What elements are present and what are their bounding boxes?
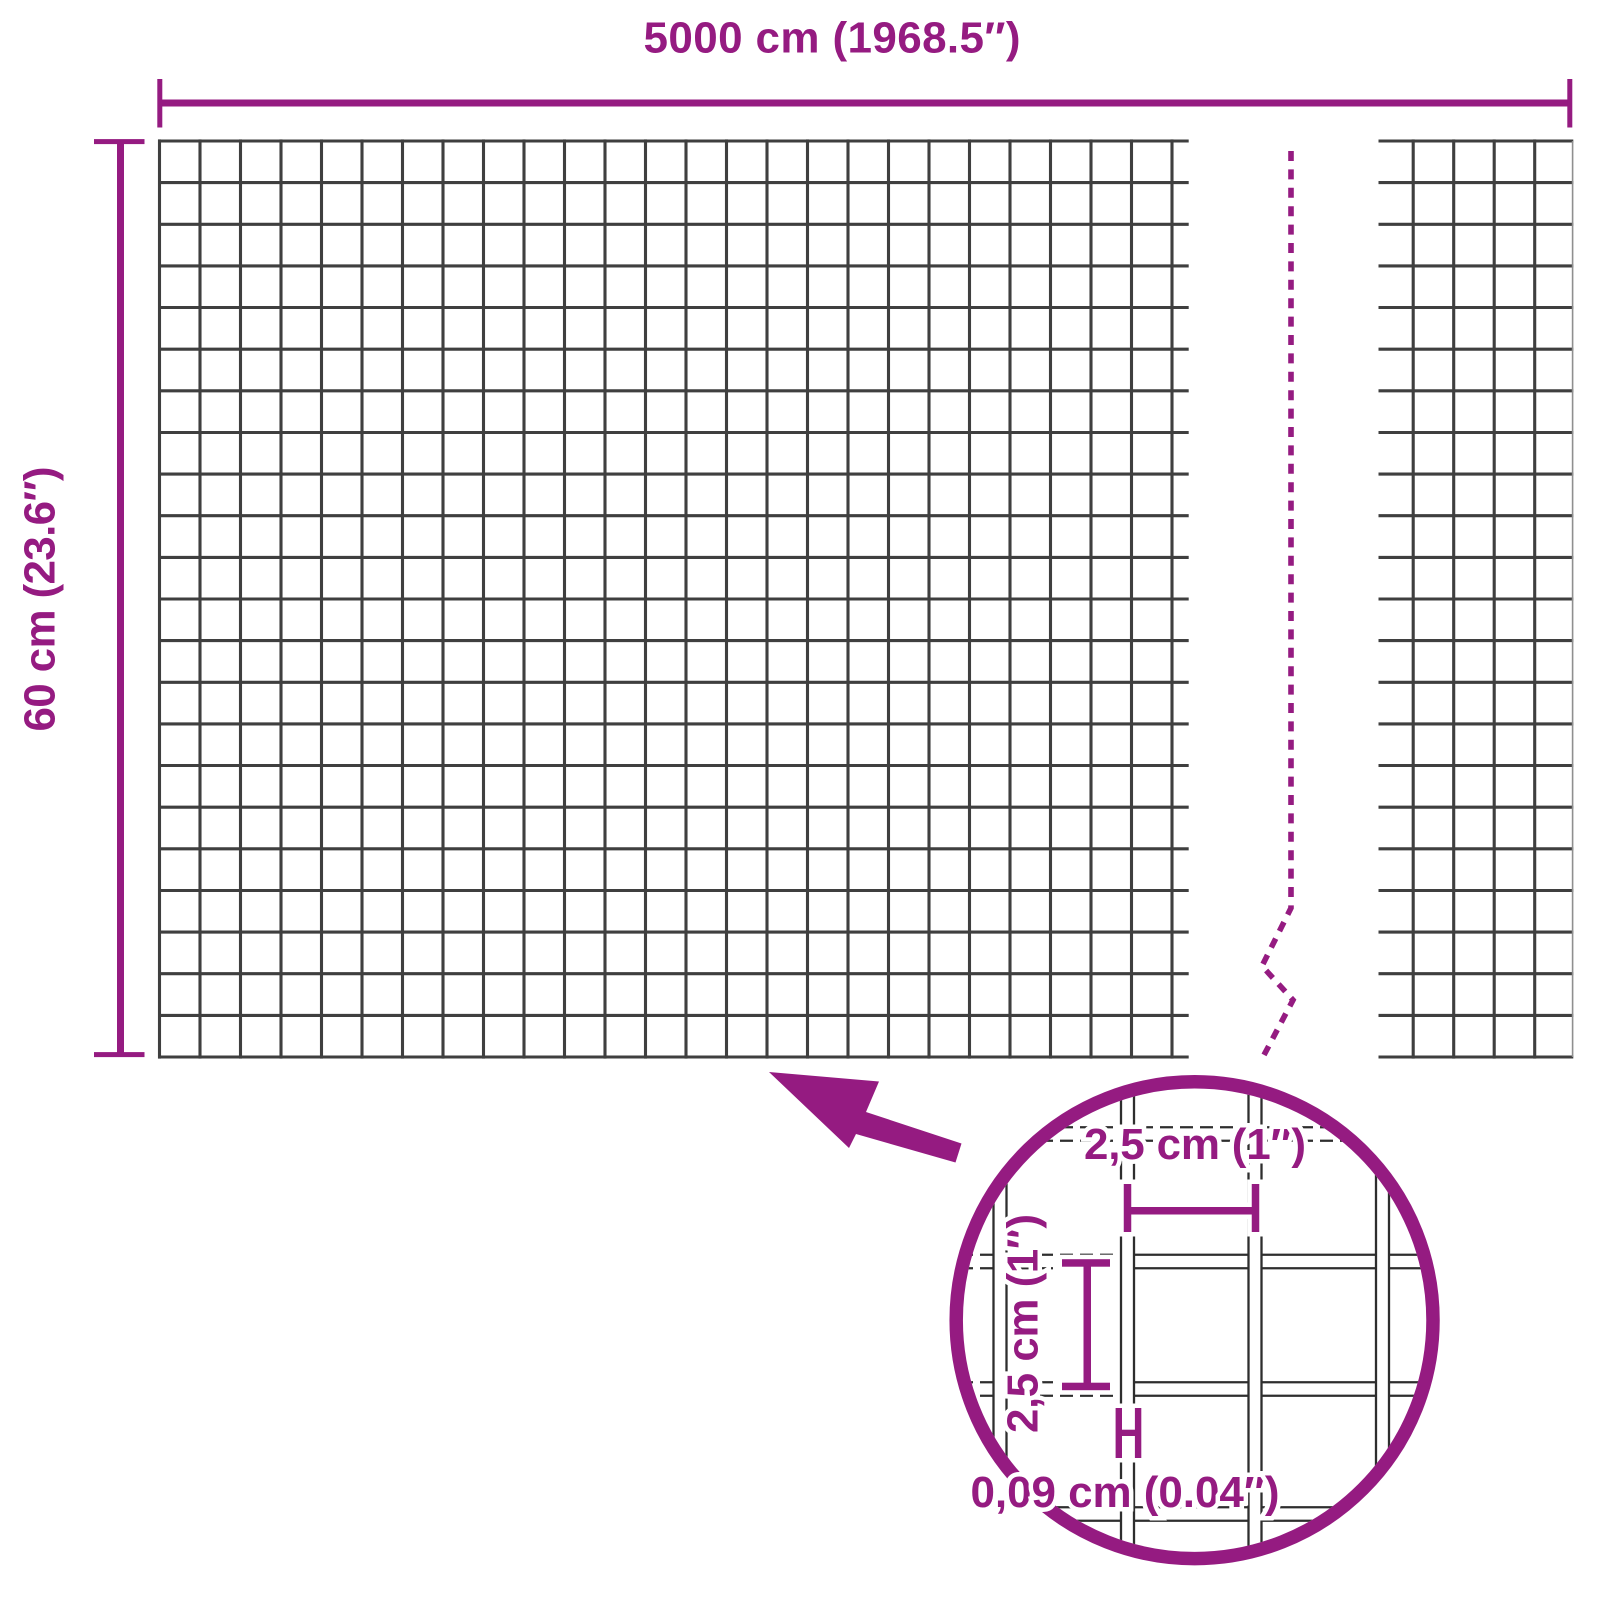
- svg-text:60 cm (23.6″): 60 cm (23.6″): [16, 467, 65, 732]
- svg-text:0,09 cm (0.04″): 0,09 cm (0.04″): [971, 1468, 1280, 1517]
- svg-text:2,5 cm (1″): 2,5 cm (1″): [999, 1214, 1048, 1433]
- svg-text:2,5 cm (1″): 2,5 cm (1″): [1084, 1120, 1306, 1169]
- svg-text:5000 cm (1968.5″): 5000 cm (1968.5″): [644, 14, 1021, 63]
